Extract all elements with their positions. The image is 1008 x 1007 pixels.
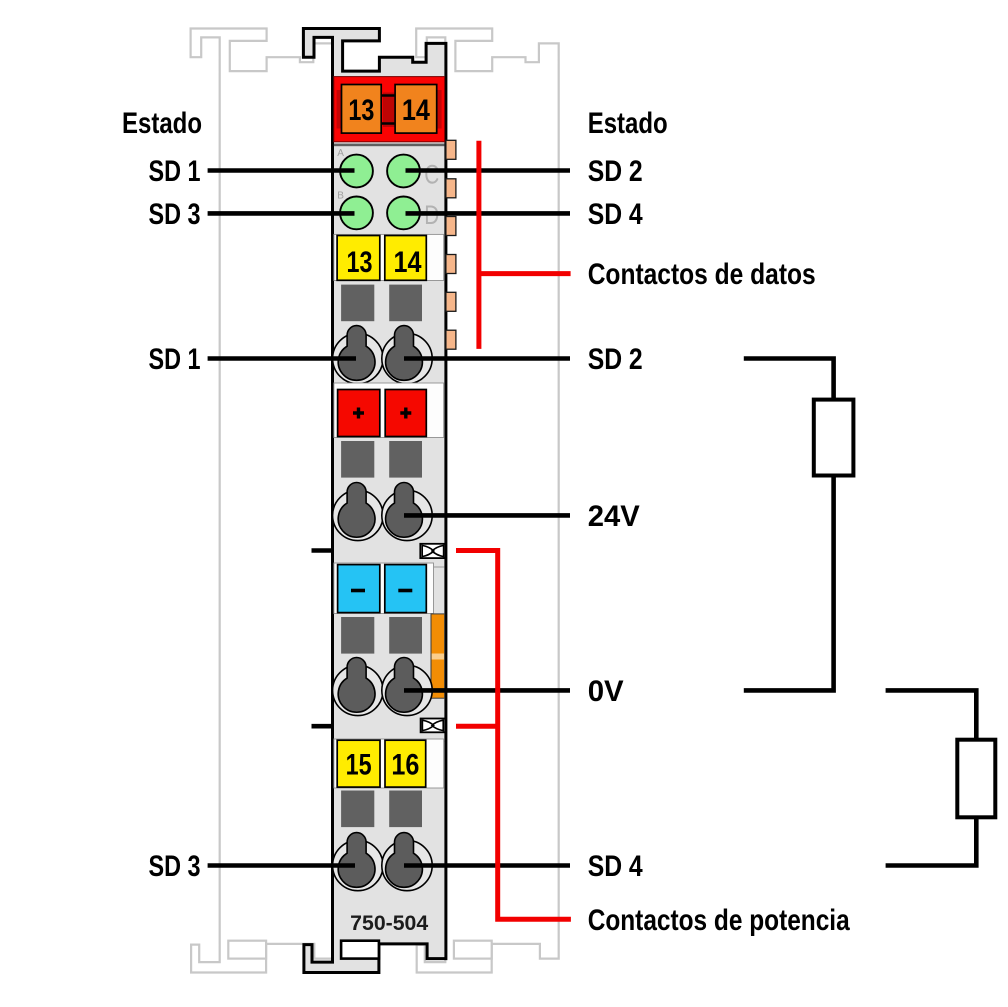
svg-text:14: 14 [394,246,422,279]
svg-text:Contactos de datos: Contactos de datos [588,258,816,291]
svg-text:SD 1: SD 1 [149,155,201,188]
svg-text:B: B [337,190,344,201]
svg-text:0V: 0V [588,675,624,708]
svg-text:SD 3: SD 3 [149,198,201,231]
svg-text:SD 3: SD 3 [149,850,201,883]
svg-text:SD 2: SD 2 [588,343,643,376]
svg-text:A: A [337,148,344,159]
svg-text:13: 13 [348,94,374,127]
svg-text:SD 4: SD 4 [588,198,643,231]
svg-text:24V: 24V [588,500,640,533]
svg-text:C: C [424,159,439,189]
svg-text:SD 2: SD 2 [588,155,643,188]
svg-text:750-504: 750-504 [350,912,428,935]
svg-text:SD 1: SD 1 [149,343,201,376]
svg-text:Estado: Estado [588,107,668,140]
svg-text:Contactos de potencia: Contactos de potencia [588,904,850,937]
svg-text:Estado: Estado [122,107,202,140]
svg-text:13: 13 [347,246,373,279]
svg-text:16: 16 [391,749,419,782]
svg-text:14: 14 [402,94,430,127]
svg-text:SD 4: SD 4 [588,850,643,883]
svg-text:15: 15 [346,749,372,782]
